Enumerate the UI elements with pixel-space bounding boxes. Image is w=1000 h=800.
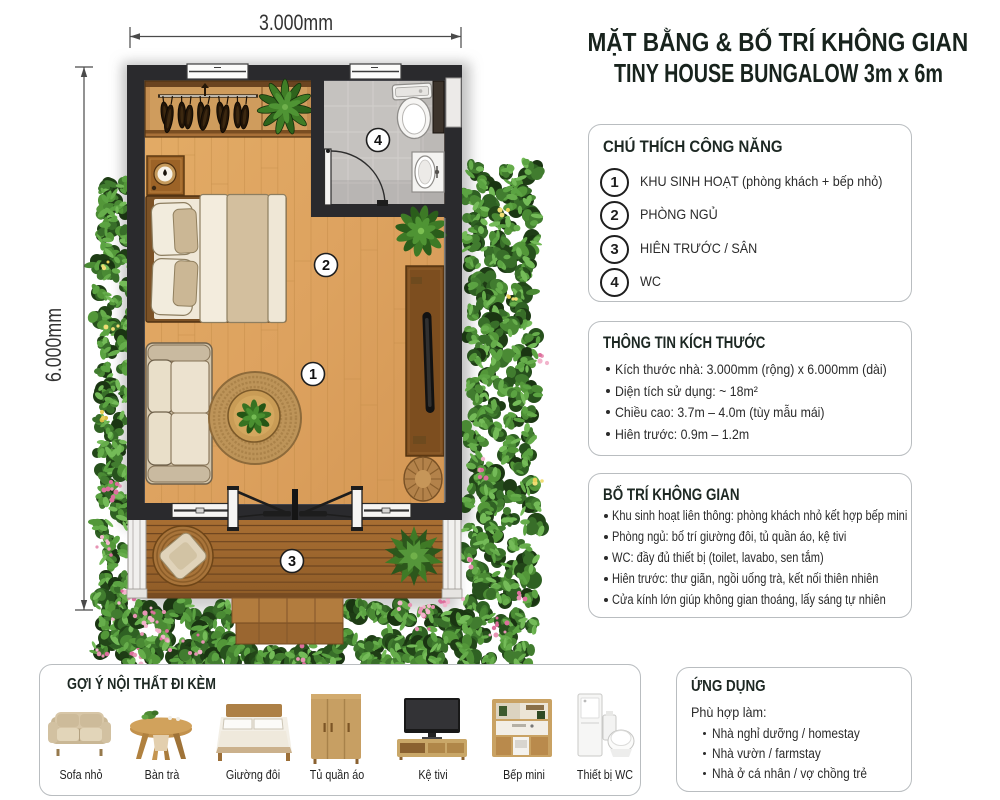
svg-text:3.000mm: 3.000mm <box>259 10 333 35</box>
svg-text:1: 1 <box>309 367 317 383</box>
svg-text:4: 4 <box>374 133 382 149</box>
svg-text:6.000mm: 6.000mm <box>41 308 66 382</box>
svg-text:2: 2 <box>322 258 330 274</box>
svg-text:3: 3 <box>288 554 296 570</box>
